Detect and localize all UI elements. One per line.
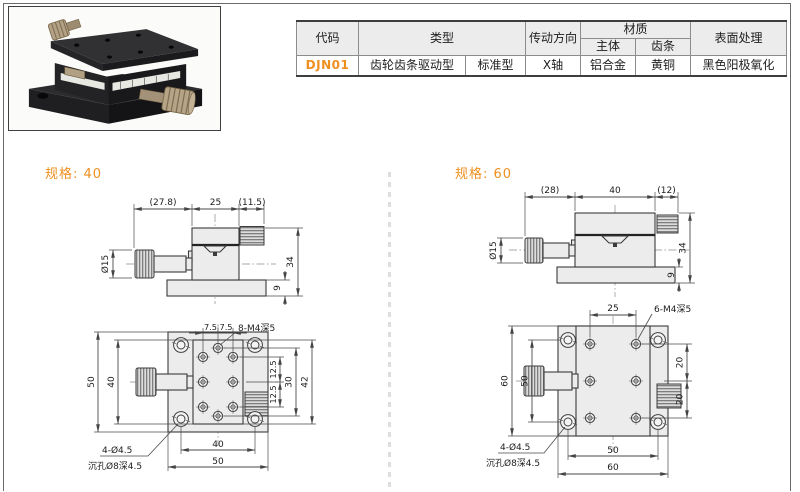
dimension-label: 9	[273, 285, 283, 291]
corner-hole-callout: 4-Ø4.5	[102, 445, 132, 456]
knob-shaft	[154, 256, 186, 272]
dimension-label: 25	[607, 304, 618, 314]
cell-type-main: 齿轮齿条驱动型	[359, 56, 466, 77]
dimension-label: 50	[607, 446, 619, 456]
dimension-label: 50	[87, 376, 97, 388]
dimension-label: (28)	[541, 186, 559, 196]
dimension-label: 7.5	[204, 322, 217, 332]
dimension-label: 40	[212, 440, 224, 450]
dimension-label: 40	[609, 186, 621, 196]
cell-material-rack: 黄铜	[636, 56, 691, 77]
spec-table: 代码 类型 传动方向 材质 表面处理 主体 齿条 DJN01 齿轮齿条驱动型 标…	[296, 20, 787, 77]
drive-knob	[136, 368, 156, 396]
dimension-label: (12)	[657, 186, 675, 196]
product-photo	[9, 7, 220, 130]
dimension-label: (27.8)	[149, 198, 176, 208]
cell-direction: X轴	[526, 56, 581, 77]
knob-shaft	[156, 374, 187, 390]
corner-hole-callout: 沉孔Ø8深4.5	[88, 461, 142, 472]
dimension-label: 25	[210, 198, 221, 208]
spec60-title: 规格: 60	[455, 163, 512, 182]
dimension-label: 50	[521, 375, 531, 387]
hole-callout: 8-M4深5	[238, 323, 275, 334]
dimension-label: 30	[285, 376, 295, 388]
dimension-label: 20	[676, 394, 686, 406]
dimension-label: 12.5	[268, 385, 278, 403]
base-plate	[557, 267, 675, 283]
header-material-body: 主体	[581, 39, 636, 56]
rack-knob	[657, 215, 678, 233]
spec40-side-drawing: (27.8) 25 (11.5) Ø15 34 9	[82, 188, 317, 313]
hole-callout: 6-M4深5	[654, 304, 691, 315]
dimension-label: 60	[501, 375, 511, 387]
spec40-plan-drawing: 7.5 7.5 8-M4深5 50 40 12.5 12.5 30 42 40	[80, 304, 320, 486]
dimension-label: 40	[107, 376, 117, 388]
corner-hole-callout: 4-Ø4.5	[500, 442, 530, 453]
header-code: 代码	[297, 21, 359, 56]
shaft-collar	[572, 374, 578, 388]
section-divider	[388, 172, 391, 490]
knob-shaft	[543, 243, 569, 258]
cell-code: DJN01	[297, 56, 359, 77]
dimension-label: 60	[607, 463, 619, 473]
header-material-rack: 齿条	[636, 39, 691, 56]
header-material: 材质	[581, 21, 691, 39]
dimension-label: 50	[212, 457, 224, 467]
corner-hole-callout: 沉孔Ø8深4.5	[486, 458, 540, 469]
knob-shaft	[544, 372, 572, 390]
dimension-label: Ø15	[100, 255, 111, 274]
dimension-label: 34	[286, 256, 296, 268]
product-photo-box	[8, 6, 221, 131]
cell-surface: 黑色阳极氧化	[691, 56, 787, 77]
dimension-label: (11.5)	[238, 198, 265, 208]
spec40-title: 规格: 40	[45, 163, 102, 182]
shaft-collar	[186, 258, 192, 270]
spec60-side-drawing: (28) 40 (12) Ø15 34 9	[455, 183, 700, 313]
header-surface: 表面处理	[691, 21, 787, 56]
dimension-label: 34	[679, 242, 689, 254]
dimension-label: 12.5	[268, 360, 278, 378]
shaft-collar	[569, 245, 575, 256]
base-plate	[167, 280, 266, 296]
drive-knob	[135, 250, 154, 278]
dimension-label: Ø15	[488, 241, 499, 260]
dimension-label: 7.5	[219, 322, 232, 332]
rack-knob	[240, 227, 264, 246]
cell-type-sub: 标准型	[466, 56, 526, 77]
dimension-label: 42	[301, 376, 311, 387]
header-direction: 传动方向	[526, 21, 581, 56]
vernier-notch	[613, 243, 617, 247]
dimension-label: 20	[676, 357, 686, 369]
shaft-collar	[187, 376, 193, 388]
drive-knob	[525, 238, 543, 263]
spec60-plan-drawing: 25 6-M4深5 60 50 20 20 50 60 4-Ø4.5 沉孔Ø8深…	[438, 298, 708, 492]
cell-material-body: 铝合金	[581, 56, 636, 77]
header-type: 类型	[359, 21, 526, 56]
vernier-notch	[213, 252, 217, 256]
moving-platform	[575, 213, 655, 235]
dimension-label: 9	[667, 272, 677, 278]
